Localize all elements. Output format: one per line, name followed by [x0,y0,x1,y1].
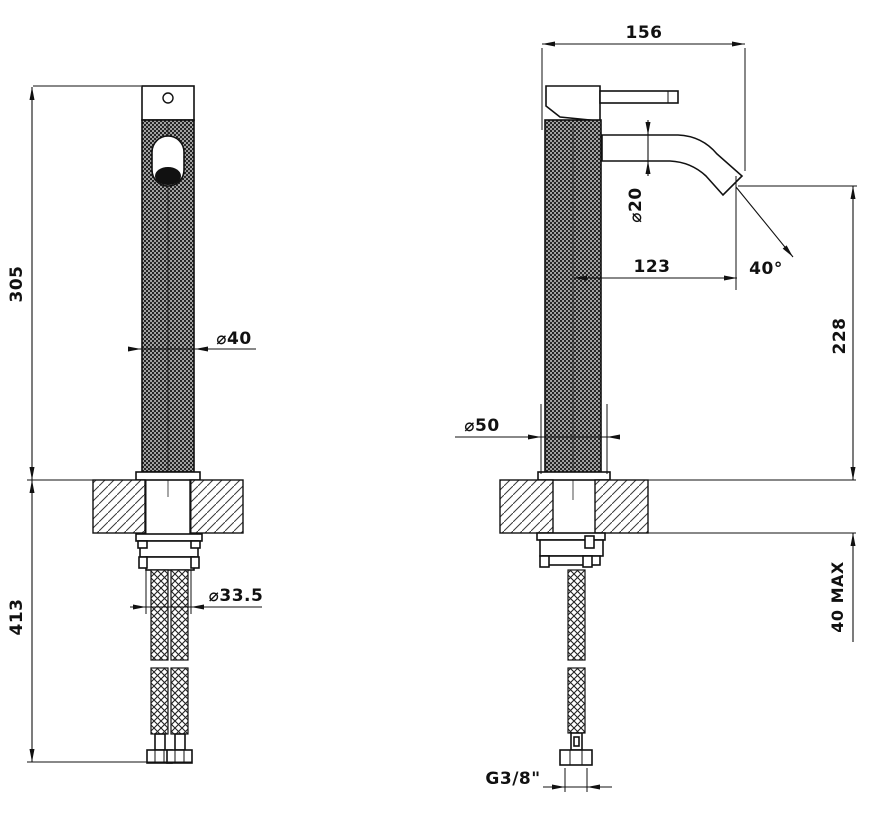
angle-line [736,187,793,257]
spout-opening-icon [155,167,181,185]
arrowhead [587,785,600,790]
drawing-canvas: 305 413 ⌀40 ⌀33.5 156 [0,0,885,824]
arrowhead [783,245,793,257]
manifold-tab-right [191,557,199,568]
arrowhead [646,161,651,174]
deck-section-left [500,480,553,533]
dim-label-depth: 156 [626,23,663,43]
arrowhead [542,42,555,47]
arrowhead [724,276,737,281]
arrowhead [851,533,856,546]
hose-upper [568,570,585,660]
arrowhead [607,435,620,440]
hose-right-lower [171,668,188,734]
mounting-nut-front [140,541,198,557]
hose-collar-detail [574,737,579,746]
hose-right-upper [171,570,188,660]
arrowhead [191,605,204,610]
base-flange-side [538,472,610,480]
side-view: 156 ⌀20 [455,23,857,792]
manifold-tab-left [540,556,549,567]
dim-label-deck-thickness: 40 MAX [828,561,847,633]
dim-label-spout-reach: 123 [634,257,671,277]
arrowhead [851,467,856,480]
arrowhead [30,467,35,480]
hose-collar-right [175,734,185,750]
dim-label-shank-diameter: ⌀33.5 [209,586,264,606]
hose-hex-nut [560,750,592,765]
hose-lower [568,668,585,733]
arrowhead [646,122,651,135]
dim-label-spout-angle: 40° [749,259,783,279]
mounting-washer-front [136,534,202,541]
manifold-tab-left [139,557,147,568]
dim-label-spout-tube-diameter: ⌀20 [626,187,646,222]
dim-label-body-diameter: ⌀40 [216,329,251,349]
hose-left-lower [151,668,168,734]
arrowhead [30,480,35,493]
arrowhead [30,87,35,100]
hose-left-upper [151,570,168,660]
dim-label-base-diameter: ⌀50 [464,416,499,436]
handle-pin-icon [163,93,173,103]
manifold-tab-right [583,556,592,567]
handle-lever [600,91,678,103]
dim-label-spout-height: 228 [830,318,850,355]
base-flange-front [136,472,200,480]
washer-tab-left [138,541,147,548]
hose-collar-left [155,734,165,750]
arrowhead [30,749,35,762]
hose-manifold-front [146,557,194,570]
spout [602,135,742,195]
arrowhead [552,785,565,790]
arrowhead [732,42,745,47]
set-screw [585,536,594,548]
technical-drawing-faucet: 305 413 ⌀40 ⌀33.5 156 [0,0,885,824]
deck-section-left [93,480,145,533]
front-view: 305 413 ⌀40 ⌀33.5 [7,86,263,763]
deck-section-right [595,480,648,533]
handle-cap-side [546,86,600,121]
arrowhead [851,186,856,199]
deck-section-right [190,480,243,533]
arrowhead [133,605,146,610]
arrowhead [195,347,208,352]
dim-label-hose-connection: G3/8" [485,769,540,789]
arrowhead [128,347,141,352]
hose-hex-nut-right [167,750,192,763]
dim-label-total-height: 305 [7,266,27,303]
dim-label-below-deck-height: 413 [7,599,27,636]
washer-tab-right [191,541,200,548]
arrowhead [528,435,541,440]
